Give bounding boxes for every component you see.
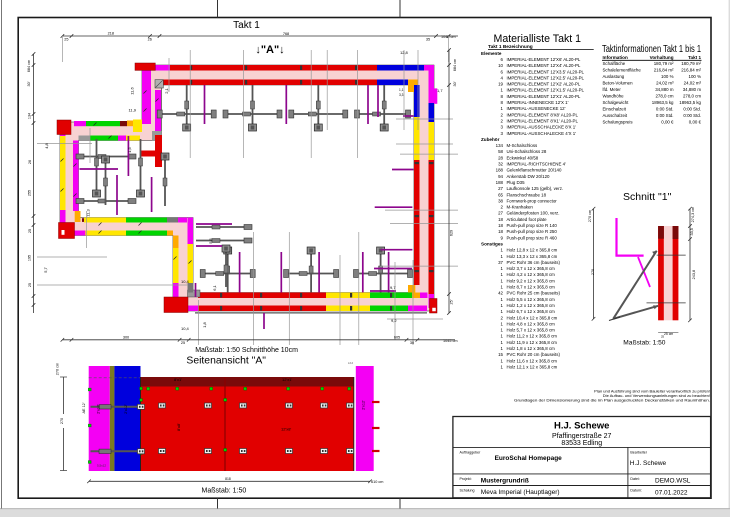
svg-text:28: 28 <box>498 155 503 160</box>
svg-text:0,00 €: 0,00 € <box>661 120 674 125</box>
svg-text:Holz 11,6 x 12 x 365,8 cm: Holz 11,6 x 12 x 365,8 cm <box>507 358 558 363</box>
svg-text:Holz 8,7 x 12 x 365,8 cm: Holz 8,7 x 12 x 365,8 cm <box>507 285 556 290</box>
svg-text:Schalgewicht: Schalgewicht <box>603 100 630 105</box>
svg-text:IMPERIAL-ELEMENT 12'X6' AL20-: IMPERIAL-ELEMENT 12'X6' AL20-PL <box>507 57 581 62</box>
svg-text:Bearbeiter: Bearbeiter <box>630 451 647 455</box>
svg-text:27: 27 <box>498 186 503 191</box>
svg-text:274,3 cm: 274,3 cm <box>691 207 695 223</box>
svg-text:0:00 Std.: 0:00 Std. <box>656 113 674 118</box>
svg-text:Holz 4,8 x 12 x 365,8 cm: Holz 4,8 x 12 x 365,8 cm <box>507 321 556 326</box>
svg-text:M-Schalschloss: M-Schalschloss <box>507 143 539 148</box>
svg-text:lfd. Meter: lfd. Meter <box>603 87 622 92</box>
svg-text:270: 270 <box>591 269 595 275</box>
svg-text:Maßstab: 1:50: Maßstab: 1:50 <box>623 340 665 347</box>
svg-text:Holz 13,3 x 12 x 365,8 cm: Holz 13,3 x 12 x 365,8 cm <box>507 254 558 259</box>
svg-text:25: 25 <box>661 335 665 339</box>
svg-text:Eckwinkel 40/58: Eckwinkel 40/58 <box>507 155 539 160</box>
svg-text:IMPERIAL-ELEMENT 12'X3.5' AL20: IMPERIAL-ELEMENT 12'X3.5' AL20-PL <box>507 69 585 74</box>
svg-text:134: 134 <box>496 143 504 148</box>
svg-text:94: 94 <box>498 174 503 179</box>
svg-text:30': 30' <box>453 81 457 86</box>
svg-text:Push-pull prop size R 250: Push-pull prop size R 250 <box>507 229 558 234</box>
svg-text:270 cm: 270 cm <box>56 363 60 375</box>
svg-text:Sonstiges: Sonstiges <box>481 241 503 246</box>
svg-text:0:00 Std.: 0:00 Std. <box>656 107 674 112</box>
svg-text:Information: Information <box>603 55 628 60</box>
svg-text:278,0 cm: 278,0 cm <box>655 94 673 99</box>
svg-text:3,3: 3,3 <box>399 93 404 97</box>
svg-text:PVC Rohr 36 cm (bauseits): PVC Rohr 36 cm (bauseits) <box>507 260 561 265</box>
svg-text:IMPERIAL-ELEMENT 12'X1' AL20: IMPERIAL-ELEMENT 12'X1' AL20-PL <box>507 94 581 99</box>
svg-text:AE 12': AE 12' <box>82 402 86 413</box>
svg-text:300: 300 <box>123 335 129 339</box>
svg-text:Flanschschraube 18: Flanschschraube 18 <box>507 192 547 197</box>
svg-text:Holz 1,8 x 12 x 365,8 cm: Holz 1,8 x 12 x 365,8 cm <box>507 346 556 351</box>
svg-text:32: 32 <box>498 162 503 167</box>
svg-text:8'x1': 8'x1' <box>174 377 182 382</box>
svg-text:Maßstab: 1:50 Schnitthöhe 10: Maßstab: 1:50 Schnitthöhe 10cm <box>195 347 298 354</box>
svg-text:0:00 Std.: 0:00 Std. <box>683 107 701 112</box>
svg-text:Gelenkflanschmutter 20/140: Gelenkflanschmutter 20/140 <box>507 168 562 173</box>
svg-text:Holz 5,7 x 12 x 365,8 cm: Holz 5,7 x 12 x 365,8 cm <box>507 328 556 333</box>
svg-text:Meva Imperial (Hauptlager): Meva Imperial (Hauptlager) <box>481 489 560 496</box>
svg-text:Holz 11,2 x 12 x 365,8 cm: Holz 11,2 x 12 x 365,8 cm <box>507 334 558 339</box>
svg-text:218: 218 <box>108 32 114 36</box>
svg-text:34,880 m: 34,880 m <box>655 87 674 92</box>
svg-text:35: 35 <box>426 38 430 42</box>
svg-text:24,02 m³: 24,02 m³ <box>656 81 674 86</box>
svg-text:180,79 m²: 180,79 m² <box>654 61 674 66</box>
svg-text:07.01.2022: 07.01.2022 <box>655 489 688 496</box>
svg-text:10,4: 10,4 <box>181 279 190 284</box>
svg-text:Schnitt "1": Schnitt "1" <box>623 191 672 203</box>
svg-text:100 %: 100 % <box>689 74 702 79</box>
svg-text:27: 27 <box>498 211 503 216</box>
svg-text:243,8: 243,8 <box>692 270 696 280</box>
svg-text:Elemente: Elemente <box>481 51 502 56</box>
svg-text:180,79 m²: 180,79 m² <box>681 61 701 66</box>
svg-text:100 %: 100 % <box>661 74 674 79</box>
svg-text:12,8: 12,8 <box>400 50 409 55</box>
svg-text:15: 15 <box>498 352 503 357</box>
svg-text:IMPERIAL-ELEMENT 12'X1.5' AL20: IMPERIAL-ELEMENT 12'X1.5' AL20-PL <box>507 88 585 93</box>
svg-text:1,8: 1,8 <box>202 321 207 327</box>
svg-text:0,00 €: 0,00 € <box>689 120 702 125</box>
svg-text:Takt 1: Takt 1 <box>688 55 701 60</box>
svg-text:9,2: 9,2 <box>391 318 397 323</box>
svg-text:Projekt:: Projekt: <box>460 477 472 481</box>
svg-text:10,4: 10,4 <box>181 326 190 331</box>
svg-text:629: 629 <box>450 230 454 236</box>
svg-text:1045 cm: 1045 cm <box>443 339 458 343</box>
svg-text:278,0 cm: 278,0 cm <box>683 94 701 99</box>
svg-text:24,02 m³: 24,02 m³ <box>684 81 702 86</box>
svg-text:Auslastung: Auslastung <box>603 74 625 79</box>
svg-text:↓"A"↓: ↓"A"↓ <box>255 44 284 56</box>
svg-text:25: 25 <box>28 283 32 287</box>
svg-text:2,1: 2,1 <box>164 87 169 93</box>
svg-text:0:00 Std.: 0:00 Std. <box>683 113 701 118</box>
svg-text:Holz 6,7 x 12 x 365,8 cm: Holz 6,7 x 12 x 365,8 cm <box>507 309 556 314</box>
svg-text:11,3: 11,3 <box>86 208 91 216</box>
svg-text:684 cm: 684 cm <box>453 59 457 71</box>
svg-text:IMPERIAL-AUSSENECKE 12': IMPERIAL-AUSSENECKE 12' <box>507 106 566 111</box>
svg-text:18963,5 kg: 18963,5 kg <box>652 100 674 105</box>
svg-text:5,5: 5,5 <box>208 237 213 243</box>
svg-text:605: 605 <box>394 335 400 339</box>
svg-text:Holz 10,4 x 12 x 365,8 cm: Holz 10,4 x 12 x 365,8 cm <box>507 315 558 320</box>
svg-text:Schalelementfläche: Schalelementfläche <box>603 68 642 73</box>
svg-text:2'x12': 2'x12' <box>362 400 366 410</box>
svg-text:Takt 1: Takt 1 <box>233 20 260 31</box>
svg-text:IMPERIAL-ELEMENT 8'X8' AL20-: IMPERIAL-ELEMENT 8'X8' AL20-PL <box>507 112 579 117</box>
svg-text:18: 18 <box>498 229 503 234</box>
svg-text:25: 25 <box>181 341 185 345</box>
svg-text:Holz 11,9 x 12 x 365,8 cm: Holz 11,9 x 12 x 365,8 cm <box>507 340 558 345</box>
svg-text:270 cm: 270 cm <box>588 210 592 222</box>
svg-text:2'x12': 2'x12' <box>97 404 101 414</box>
svg-text:Holz 5,5 x 12 x 365,8 cm: Holz 5,5 x 12 x 365,8 cm <box>507 297 556 302</box>
svg-text:Ausschalzeit: Ausschalzeit <box>603 113 628 118</box>
svg-text:Plug D35: Plug D35 <box>507 180 526 185</box>
svg-text:IMPERIAL-ELEMENT 8'X1' AL20-: IMPERIAL-ELEMENT 8'X1' AL20-PL <box>507 118 579 123</box>
svg-text:65: 65 <box>498 192 503 197</box>
svg-text:134: 134 <box>28 113 32 119</box>
svg-text:EuroSchal Homepage: EuroSchal Homepage <box>495 455 563 462</box>
svg-text:Grundlagen der Dimensionierung: Grundlagen der Dimensionierung sind die … <box>514 398 710 403</box>
svg-text:Auftraggeber: Auftraggeber <box>460 451 482 455</box>
svg-text:768: 768 <box>283 32 289 36</box>
svg-text:216,84 m²: 216,84 m² <box>681 68 701 73</box>
svg-text:818: 818 <box>225 477 231 481</box>
svg-text:8'x8': 8'x8' <box>176 423 181 431</box>
svg-text:H.J. Schewe: H.J. Schewe <box>630 460 667 467</box>
svg-text:Geländerpfosten 100, verz.: Geländerpfosten 100, verz. <box>507 211 560 216</box>
svg-text:Schalungspreis: Schalungspreis <box>603 120 634 125</box>
svg-text:216,84 m²: 216,84 m² <box>654 68 674 73</box>
svg-text:Holz 12,1 x 12 x 365,8 cm: Holz 12,1 x 12 x 365,8 cm <box>507 364 558 369</box>
svg-text:9,7: 9,7 <box>390 285 396 290</box>
svg-text:18: 18 <box>498 223 503 228</box>
svg-text:11,9: 11,9 <box>129 108 137 113</box>
svg-text:PVC Rohr 20 cm (bauseits): PVC Rohr 20 cm (bauseits) <box>507 352 561 357</box>
svg-text:5,7: 5,7 <box>43 266 48 272</box>
svg-text:Schalfläche: Schalfläche <box>603 61 626 66</box>
svg-text:270: 270 <box>60 418 64 424</box>
svg-text:Articulated foot plate: Articulated foot plate <box>507 217 548 222</box>
svg-text:Seitenansicht "A": Seitenansicht "A" <box>186 356 266 367</box>
svg-text:Beton-Volumen: Beton-Volumen <box>603 81 634 86</box>
svg-text:Materialliste Takt 1: Materialliste Takt 1 <box>494 33 582 45</box>
svg-text:19: 19 <box>498 82 503 87</box>
svg-text:IMPERIAL-ELEMENT 12'X4' AL20-: IMPERIAL-ELEMENT 12'X4' AL20-PL <box>507 63 581 68</box>
svg-text:Holz 9,2 x 12 x 365,8 cm: Holz 9,2 x 12 x 365,8 cm <box>507 278 556 283</box>
svg-text:Schalung: Schalung <box>460 489 475 493</box>
svg-text:IMPERIAL-ELEMENT 12'X2.5' AL20: IMPERIAL-ELEMENT 12'X2.5' AL20-PL <box>507 75 585 80</box>
svg-text:Push-pull prop size R 460: Push-pull prop size R 460 <box>507 235 558 240</box>
svg-text:2'x12': 2'x12' <box>124 404 128 414</box>
svg-text:188: 188 <box>496 180 504 185</box>
svg-text:Laufkonsole 125 (gelb), verz.: Laufkonsole 125 (gelb), verz. <box>507 186 564 191</box>
svg-text:DEMO.WSL: DEMO.WSL <box>655 477 691 484</box>
svg-text:Taktinformationen Takt 1 bis: Taktinformationen Takt 1 bis 1 <box>602 43 701 55</box>
svg-text:25: 25 <box>28 229 32 233</box>
svg-text:Ankerstab DW 20/120: Ankerstab DW 20/120 <box>507 174 551 179</box>
svg-text:30: 30 <box>410 341 414 345</box>
svg-text:Wandhöhe: Wandhöhe <box>603 94 625 99</box>
svg-text:1,1: 1,1 <box>399 88 404 92</box>
svg-text:Vorhaltung: Vorhaltung <box>650 55 674 60</box>
svg-text:18963,5 kg: 18963,5 kg <box>679 100 701 105</box>
svg-text:Datum:: Datum: <box>630 489 642 493</box>
svg-text:58: 58 <box>498 149 503 154</box>
svg-text:Datei:: Datei: <box>630 477 639 481</box>
svg-text:Holz 4,2 x 12 x 365,8 cm: Holz 4,2 x 12 x 365,8 cm <box>507 272 556 277</box>
svg-text:18: 18 <box>498 217 503 222</box>
svg-text:26: 26 <box>28 160 32 164</box>
svg-text:12'x8': 12'x8' <box>281 427 291 432</box>
svg-text:30': 30' <box>27 81 31 86</box>
svg-text:M-Kranhaken: M-Kranhaken <box>507 205 534 210</box>
svg-text:IMPERIAL-INNENECKE 12'X 1': IMPERIAL-INNENECKE 12'X 1' <box>507 100 569 105</box>
svg-text:684 cm: 684 cm <box>27 60 31 72</box>
svg-text:Zubehör: Zubehör <box>481 137 500 142</box>
svg-text:Holz 12,8 x 12 x 365,8 cm: Holz 12,8 x 12 x 365,8 cm <box>507 248 558 253</box>
svg-text:42: 42 <box>498 291 503 296</box>
svg-text:195: 195 <box>28 255 32 261</box>
svg-text:25: 25 <box>64 37 68 41</box>
svg-text:11,6: 11,6 <box>130 86 135 94</box>
svg-text:Mustergrundriß: Mustergrundriß <box>481 477 529 484</box>
svg-text:10: 10 <box>498 63 503 68</box>
svg-text:Holz 3,7 x 12 x 365,8 cm: Holz 3,7 x 12 x 365,8 cm <box>507 266 556 271</box>
svg-text:610 cm: 610 cm <box>371 480 383 484</box>
svg-text:Uni-Schalschloss 28: Uni-Schalschloss 28 <box>507 149 547 154</box>
svg-text:LKJ: LKJ <box>348 361 354 365</box>
svg-text:5,5x12: 5,5x12 <box>97 464 106 468</box>
svg-text:34,880 m: 34,880 m <box>683 87 702 92</box>
svg-text:Maßstab: 1:50: Maßstab: 1:50 <box>202 488 247 495</box>
svg-text:25 cm: 25 cm <box>664 332 673 336</box>
svg-text:IMPERIAL-ELEMENT 12'X2' AL20: IMPERIAL-ELEMENT 12'X2' AL20-PL <box>507 82 581 87</box>
svg-text:Push-pull prop size R 140: Push-pull prop size R 140 <box>507 223 558 228</box>
svg-text:Formwork-prop connector: Formwork-prop connector <box>507 198 558 203</box>
svg-text:25': 25' <box>450 299 454 304</box>
svg-text:37: 37 <box>498 260 503 265</box>
svg-text:1,7: 1,7 <box>437 88 443 93</box>
svg-text:12'x1': 12'x1' <box>282 377 292 382</box>
svg-text:Holz 1,2 x 12 x 365,8 cm: Holz 1,2 x 12 x 365,8 cm <box>507 303 556 308</box>
svg-text:IMPERIAL-RICHTSCHIENE 4': IMPERIAL-RICHTSCHIENE 4' <box>507 162 567 167</box>
svg-text:33,5: 33,5 <box>690 228 694 235</box>
svg-text:H.J. Schewe: H.J. Schewe <box>554 421 609 432</box>
svg-text:188: 188 <box>496 168 504 173</box>
svg-text:PVC Rohr 25 cm (bauseits): PVC Rohr 25 cm (bauseits) <box>507 291 561 296</box>
svg-text:26: 26 <box>148 38 152 42</box>
svg-text:83533 Edling: 83533 Edling <box>561 440 602 447</box>
svg-text:IMPERIAL-AUSSCHALECKE 8'X 1': IMPERIAL-AUSSCHALECKE 8'X 1' <box>507 125 577 130</box>
svg-text:IMPERIAL-AUSSCHALECKE 4'X 1': IMPERIAL-AUSSCHALECKE 4'X 1' <box>507 131 577 136</box>
svg-text:1,5: 1,5 <box>127 146 132 152</box>
svg-text:Einschalzeit: Einschalzeit <box>603 107 627 112</box>
svg-text:6,1: 6,1 <box>212 284 217 290</box>
svg-text:4,8: 4,8 <box>44 142 49 148</box>
svg-text:38: 38 <box>498 198 503 203</box>
svg-text:255: 255 <box>28 190 32 196</box>
